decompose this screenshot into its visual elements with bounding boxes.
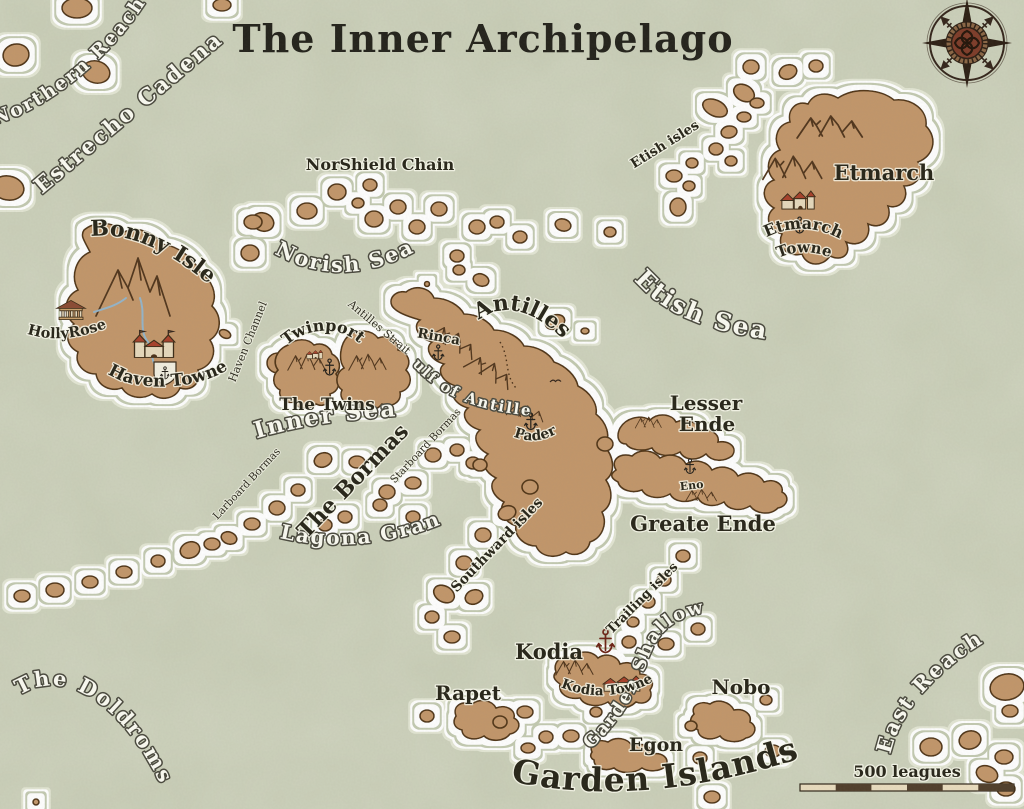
paper-grain	[0, 0, 1024, 809]
archipelago-map: The Inner Archipelago Northern Reach Est…	[0, 0, 1024, 809]
